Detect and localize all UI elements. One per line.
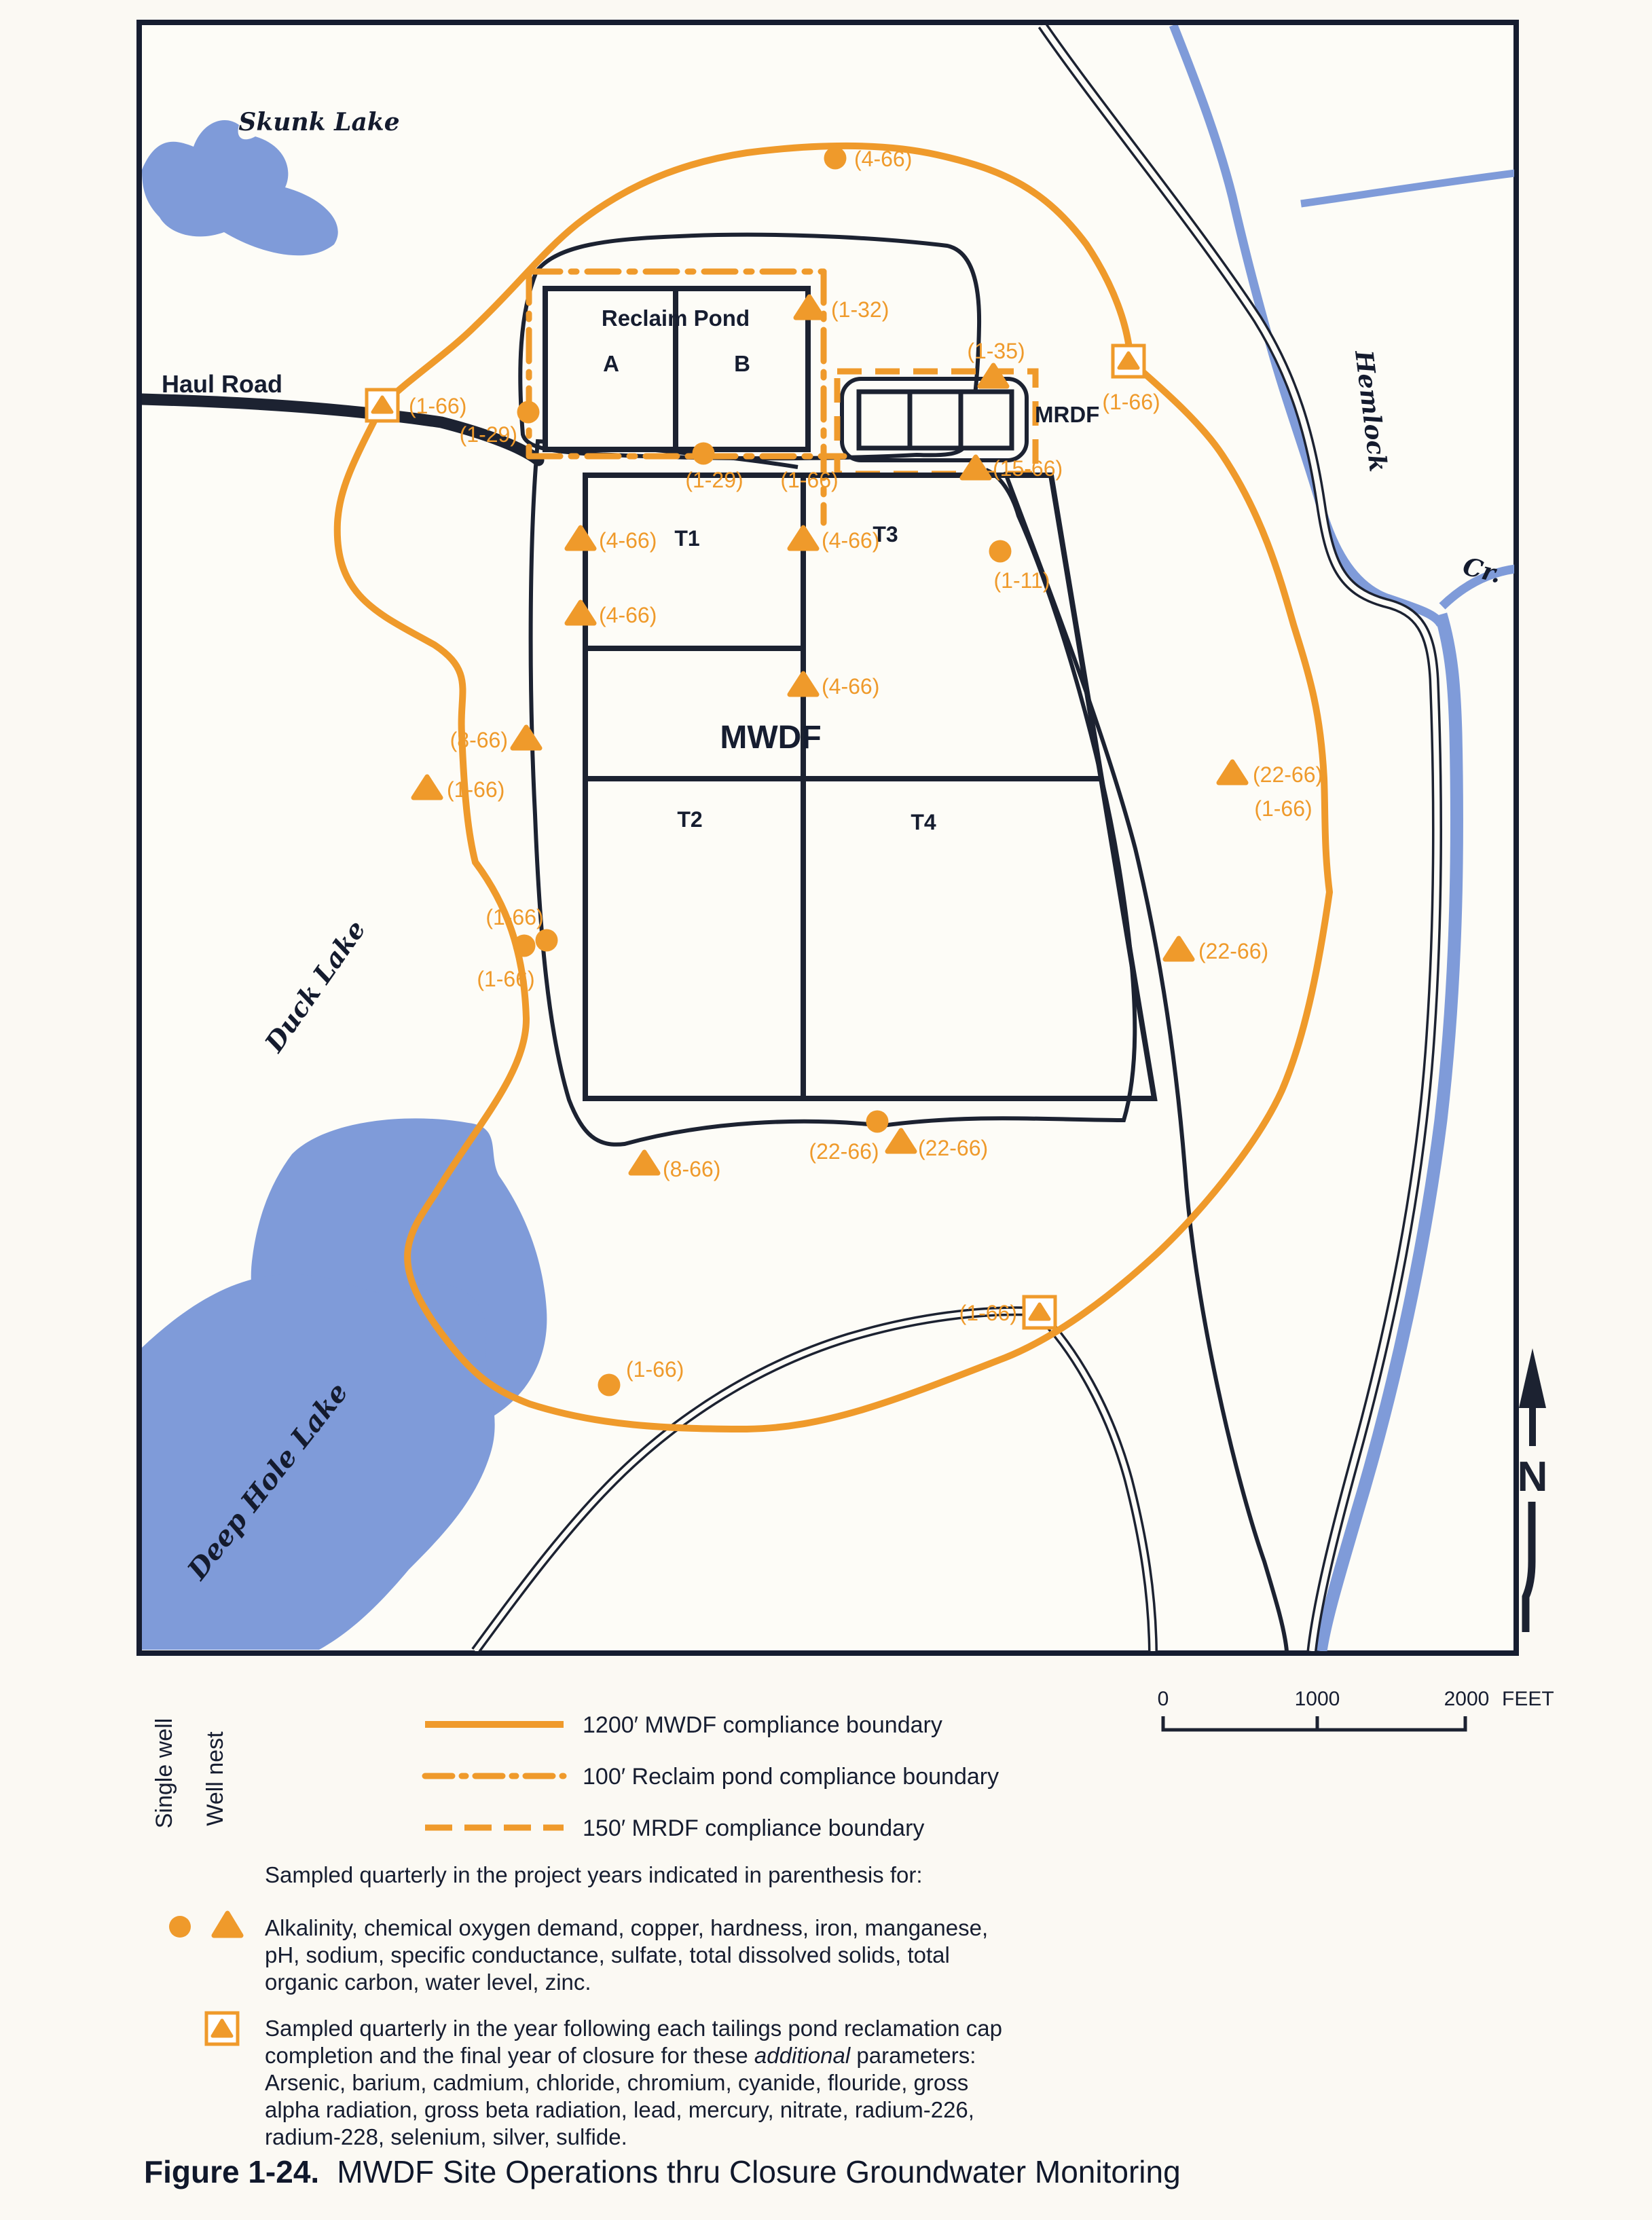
well-tri-22-66: (22-66) [1165, 938, 1268, 963]
well-tri-8-66: (8-66) [450, 727, 540, 752]
t4-label: T4 [911, 810, 936, 834]
well-tri-1-32: (1-32) [796, 297, 889, 322]
scale-tick-1000: 1000 [1295, 1688, 1340, 1710]
reclaim-pond-label: Reclaim Pond [602, 306, 750, 331]
well-tri-4-66: (4-66) [567, 602, 657, 627]
legend-swatches [425, 1724, 564, 1828]
t2-label: T2 [677, 807, 702, 832]
well-label: (1-66) [959, 1301, 1017, 1325]
figure-page: Skunk Lake Duck Lake Deep Hole Lake Heml… [0, 0, 1652, 2220]
notes-parameters-line3: organic carbon, water level, zinc. [265, 1969, 1175, 1996]
well-label-1-66: (1-66) [780, 468, 838, 492]
well-label: (22-66) [809, 1139, 879, 1164]
north-label: N [1518, 1454, 1548, 1500]
well-boxtri-1-66: (1-66) [367, 390, 466, 421]
cell-a-label: A [603, 351, 619, 376]
well-label-1-66: (1-66) [1254, 796, 1312, 821]
well-nest-header: Well nest [202, 1731, 228, 1826]
north-arrow-head [1519, 1348, 1546, 1408]
well-label: (8-66) [450, 728, 508, 752]
notes-additional: Sampled quarterly in the year following … [265, 2015, 1175, 2151]
well-label: (4-66) [854, 147, 912, 171]
well-label: (4-66) [822, 528, 879, 553]
well-label: (1-66) [1102, 390, 1160, 414]
well-label: (1-66) [626, 1357, 684, 1382]
well-label: (1-29) [685, 468, 743, 492]
well-label: (1-66) [485, 905, 543, 929]
well-label: (22-66) [918, 1136, 988, 1160]
cell-b-label: B [734, 351, 750, 376]
north-arrow: N [1518, 1348, 1548, 1632]
scale-unit: FEET [1502, 1688, 1554, 1710]
t1-label: T1 [674, 526, 699, 551]
legend-single-well-marker [169, 1916, 191, 1938]
well-tri-4-66: (4-66) [790, 528, 879, 553]
well-tri-4-66: (4-66) [790, 673, 879, 699]
notes-additional-line1: Sampled quarterly in the year following … [265, 2015, 1175, 2042]
well-tri-4-66: (4-66) [567, 528, 657, 553]
notes-additional-line3: Arsenic, barium, cadmium, chloride, chro… [265, 2069, 1175, 2096]
well-label: (4-66) [822, 674, 879, 699]
legend-100-label: 100′ Reclaim pond compliance boundary [583, 1764, 999, 1790]
figure-caption: Figure 1-24.MWDF Site Operations thru Cl… [144, 2153, 1570, 2190]
well-tri-22-66: (22-66) [1219, 762, 1323, 787]
legend-1200-label: 1200′ MWDF compliance boundary [583, 1712, 942, 1738]
well-label: (1-32) [831, 297, 889, 322]
well-label: (1-29) [460, 422, 517, 447]
mwdf-label: MWDF [720, 720, 821, 756]
scale-tick-2000: 2000 [1444, 1688, 1490, 1710]
single-well-header: Single well [151, 1718, 177, 1829]
well-label: (22-66) [1253, 762, 1323, 787]
well-tri-1-66: (1-66) [414, 777, 504, 802]
skunk-lake-label: Skunk Lake [238, 108, 399, 136]
scale-bar: 0 1000 2000 FEET [1158, 1688, 1554, 1730]
well-label: (1-66) [409, 394, 466, 418]
well-label: (1-66) [1254, 796, 1312, 821]
notes-additional-line2: completion and the final year of closure… [265, 2042, 1175, 2069]
notes-additional-emphasis: additional [754, 2043, 850, 2068]
notes-intro: Sampled quarterly in the project years i… [265, 1862, 1175, 1889]
well-label: (4-66) [599, 528, 657, 553]
mrdf-cells [859, 392, 1012, 448]
well-boxtri-1-66: (1-66) [959, 1297, 1055, 1328]
well-label: (1-66) [447, 777, 504, 802]
legend-boxed-marker [206, 2013, 238, 2044]
notes-parameters-line1: Alkalinity, chemical oxygen demand, copp… [265, 1914, 1175, 1942]
well-label: (1-66) [780, 468, 838, 492]
well-label: (22-66) [1198, 939, 1268, 963]
well-dot-4-66: (4-66) [824, 147, 913, 171]
legend-150-label: 150′ MRDF compliance boundary [583, 1815, 924, 1841]
legend-well-nest-marker [214, 1913, 241, 1936]
mrdf-label: MRDF [1035, 402, 1099, 427]
scale-tick-0: 0 [1158, 1688, 1169, 1710]
figure-title: MWDF Site Operations thru Closure Ground… [337, 2154, 1180, 2189]
well-label: (15-66) [993, 456, 1063, 481]
notes-parameters-line2: pH, sodium, specific conductance, sulfat… [265, 1942, 1175, 1969]
well-label: (8-66) [663, 1157, 720, 1181]
figure-number: Figure 1-24. [144, 2154, 319, 2189]
notes-additional-line5: radium-228, selenium, silver, sulfide. [265, 2124, 1175, 2151]
well-label: (4-66) [599, 603, 657, 627]
well-label: (1-66) [477, 967, 534, 991]
well-tri-15-66: (15-66) [962, 456, 1063, 481]
notes-additional-line4: alpha radiation, gross beta radiation, l… [265, 2096, 1175, 2124]
well-label: (1-35) [967, 339, 1025, 363]
notes-parameters: Alkalinity, chemical oxygen demand, copp… [265, 1914, 1175, 1996]
haul-road-label: Haul Road [162, 370, 282, 398]
well-label: (1-11) [994, 568, 1050, 593]
